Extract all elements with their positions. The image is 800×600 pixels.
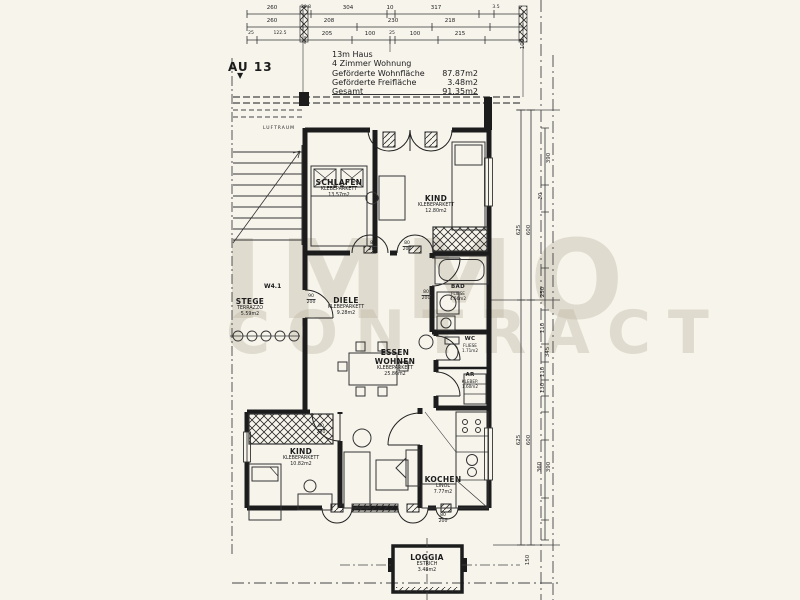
room-floor: KLEBEPARKETT xyxy=(316,187,363,193)
dim-label-rot: 30 xyxy=(538,193,544,200)
header-value: 91.35m2 xyxy=(442,87,478,96)
dim-label-rot: 345 xyxy=(545,347,551,358)
header-row-freiflaeche: Geförderte Freifläche 3.48m2 xyxy=(332,78,478,87)
dim-label: 25 xyxy=(389,31,395,36)
door-size-schlafen: 80 200 xyxy=(369,241,378,253)
dim-label-rot: 625 xyxy=(516,225,522,236)
room-name: ESSEN xyxy=(375,348,415,357)
room-label-bad: BAD FLIESE 4.56m2 xyxy=(450,284,466,301)
room-floor: KLEBEPARKETT xyxy=(283,456,319,462)
room-name: SCHLAFEN xyxy=(316,178,363,187)
room-name: KIND xyxy=(283,447,319,456)
room-label-kochen: KOCHEN LINOL 7.77m2 xyxy=(425,475,462,496)
room-area: 7.77m2 xyxy=(425,490,462,496)
dim-label: 304 xyxy=(343,5,354,11)
header-label: Geförderte Wohnfläche xyxy=(332,69,425,78)
room-label-stege: STEGE TERRAZZO 5.59m2 xyxy=(236,297,264,318)
room-name: BAD xyxy=(450,284,466,291)
room-area: 12.80m2 xyxy=(418,209,454,215)
dim-label-rot: 100 xyxy=(520,39,526,50)
room-area: 25.86m2 xyxy=(375,372,415,378)
dim-label: 20.8 xyxy=(301,5,311,10)
room-area: 3.48m2 xyxy=(410,568,444,574)
room-area: 1.71m2 xyxy=(462,348,478,353)
door-height: 200 xyxy=(317,430,326,435)
door-height: 200 xyxy=(422,296,431,301)
room-label-ar: AR KLEBEP. 1.60m2 xyxy=(462,372,478,389)
dim-label-rot: 110 xyxy=(540,323,546,334)
dim-label-rot: 250 xyxy=(540,287,546,298)
dim-label-rot: 360 xyxy=(537,462,543,473)
dim-label: 205 xyxy=(322,31,333,37)
door-height: 200 xyxy=(307,300,316,305)
dim-label-rot: 390 xyxy=(546,462,552,473)
room-label-schlafen: SCHLAFEN KLEBEPARKETT 13.57m2 xyxy=(316,178,363,199)
header-row-wohnflaeche: Geförderte Wohnfläche 87.87m2 xyxy=(332,69,478,78)
room-floor: TERRAZZO xyxy=(236,306,264,312)
room-name: WC xyxy=(462,336,478,343)
room-area: 10.82m2 xyxy=(283,462,319,468)
section-marker: AU 13 xyxy=(228,60,273,74)
room-floor: KLEBEPARKETT xyxy=(418,203,454,209)
wall-tag: W4.1 xyxy=(264,283,281,290)
dim-label: 100 xyxy=(410,31,421,37)
room-floor: KLEBEPARKETT xyxy=(375,366,415,372)
dim-label: 3.5 xyxy=(492,5,499,10)
door-size-kind2: 80 200 xyxy=(317,424,326,436)
door-size-loggia: 80 200 xyxy=(439,513,448,525)
section-marker-arrow: ▼ xyxy=(237,71,243,80)
room-area: 4.56m2 xyxy=(450,296,466,301)
door-height: 200 xyxy=(369,247,378,252)
room-label-kind1: KIND KLEBEPARKETT 12.80m2 xyxy=(418,194,454,215)
dim-label: 10 xyxy=(387,5,394,11)
dim-label: 260 xyxy=(267,5,278,11)
dim-label: 230 xyxy=(388,18,399,24)
room-name: AR xyxy=(462,372,478,379)
dim-label-rot: 110 xyxy=(540,367,546,378)
dim-label-rot: 600 xyxy=(526,225,532,236)
room-area: 5.59m2 xyxy=(236,312,264,318)
dim-label: 100 xyxy=(365,31,376,37)
header-title: 13m Haus xyxy=(332,50,478,59)
header-value: 87.87m2 xyxy=(442,69,478,78)
room-label-essen-wohnen: ESSEN WOHNEN KLEBEPARKETT 25.86m2 xyxy=(375,348,415,378)
room-area: 13.57m2 xyxy=(316,193,363,199)
room-name: STEGE xyxy=(236,297,264,306)
dim-label: 317 xyxy=(431,5,442,11)
door-height: 200 xyxy=(403,247,412,252)
header-value: 3.48m2 xyxy=(447,78,478,87)
plan-header: 13m Haus 4 Zimmer Wohnung Geförderte Woh… xyxy=(332,50,478,97)
luftraum-annotation: LUFTRAUM xyxy=(263,126,295,131)
header-label: Geförderte Freifläche xyxy=(332,78,416,87)
door-size-bad: 80 200 xyxy=(422,290,431,302)
door-size-kind1: 80 200 xyxy=(403,241,412,253)
room-label-kind2: KIND KLEBEPARKETT 10.82m2 xyxy=(283,447,319,468)
dim-label-rot: 600 xyxy=(526,435,532,446)
header-label: Gesamt xyxy=(332,87,363,96)
dim-label: 122.5 xyxy=(274,31,287,36)
room-name: KIND xyxy=(418,194,454,203)
dim-label-rot: 150 xyxy=(525,555,531,566)
door-size-diele: 90 200 xyxy=(307,294,316,306)
room-label-diele: DIELE KLEBEPARKETT 9.28m2 xyxy=(328,296,364,317)
dim-label: 208 xyxy=(324,18,335,24)
room-floor: FLIESE xyxy=(462,343,478,348)
room-name: KOCHEN xyxy=(425,475,462,484)
dim-label: 218 xyxy=(445,18,456,24)
door-height: 200 xyxy=(439,519,448,524)
room-floor: KLEBEPARKETT xyxy=(328,305,364,311)
room-label-wc: WC FLIESE 1.71m2 xyxy=(462,336,478,353)
dim-label: 215 xyxy=(455,31,466,37)
header-row-gesamt: Gesamt 91.35m2 xyxy=(332,87,478,96)
room-floor: FLIESE xyxy=(450,291,466,296)
header-subtitle: 4 Zimmer Wohnung xyxy=(332,59,478,68)
dim-label: 25 xyxy=(248,31,254,36)
room-area: 9.28m2 xyxy=(328,311,364,317)
floorplan-scan: IMMO CONTRACT xyxy=(0,0,800,600)
room-area: 1.60m2 xyxy=(462,384,478,389)
windows xyxy=(244,158,493,512)
dim-label-rot: 390 xyxy=(546,153,552,164)
dim-label: 260 xyxy=(267,18,278,24)
dim-label-rot: 130 xyxy=(540,383,546,394)
room-name: LOGGIA xyxy=(410,553,444,562)
room-name: DIELE xyxy=(328,296,364,305)
room-label-loggia: LOGGIA ESTRICH 3.48m2 xyxy=(410,553,444,574)
room-floor: KLEBEP. xyxy=(462,379,478,384)
dim-label-rot: 625 xyxy=(516,435,522,446)
room-name-2: WOHNEN xyxy=(375,357,415,366)
